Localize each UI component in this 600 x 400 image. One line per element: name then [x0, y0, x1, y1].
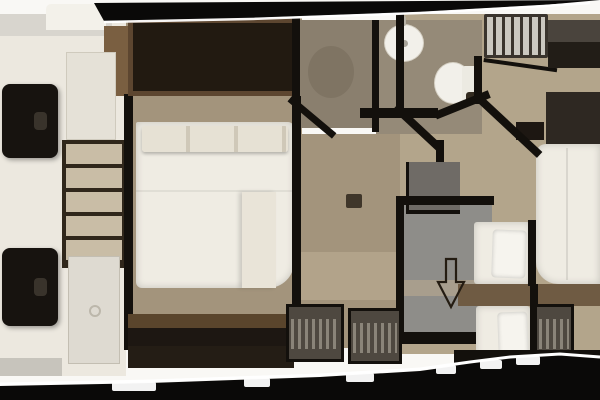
- master-bench-top: [128, 314, 294, 328]
- master-wardrobe: [128, 18, 298, 96]
- vanity-desk: [406, 162, 460, 214]
- landing-wall-vert-1: [396, 14, 404, 110]
- corridor-fwd-wall: [396, 196, 494, 205]
- master-bed-pillows: [142, 126, 288, 152]
- hull-stern-edge: [0, 340, 600, 400]
- shower-left-wall: [292, 18, 300, 102]
- shower-tray: [308, 46, 354, 98]
- master-double-bed: [136, 122, 294, 288]
- seat-cushion-highlight: [34, 278, 47, 296]
- yacht-floorplan: [0, 0, 600, 400]
- guest-bed-seam: [566, 148, 568, 280]
- chest-of-drawers: [62, 140, 126, 268]
- sink-basin: [384, 24, 424, 62]
- hatch-detail: [346, 194, 362, 208]
- companionway-down-arrow: [436, 256, 466, 312]
- lounge-seat-forward: [2, 84, 58, 158]
- guest-double-bed: [536, 144, 600, 284]
- seat-cushion-highlight: [34, 112, 47, 130]
- hull-bow-edge: [0, 0, 600, 26]
- aft-cabin-wood-band: [458, 284, 600, 306]
- door-hatch-mark: [89, 305, 101, 317]
- garage-door-upper: [66, 52, 116, 140]
- garage-bulkhead: [124, 94, 133, 350]
- mid-lobby-light-band: [299, 252, 400, 300]
- twin-divider-wall-upper: [528, 220, 536, 286]
- master-bed-runner: [242, 192, 276, 288]
- twin-berth-upper: [474, 222, 530, 284]
- starboard-cabinet-front: [548, 42, 600, 68]
- lounge-seat-aft: [2, 248, 58, 326]
- guest-headboard: [546, 92, 600, 146]
- twin-berth-upper-pillow: [491, 229, 527, 278]
